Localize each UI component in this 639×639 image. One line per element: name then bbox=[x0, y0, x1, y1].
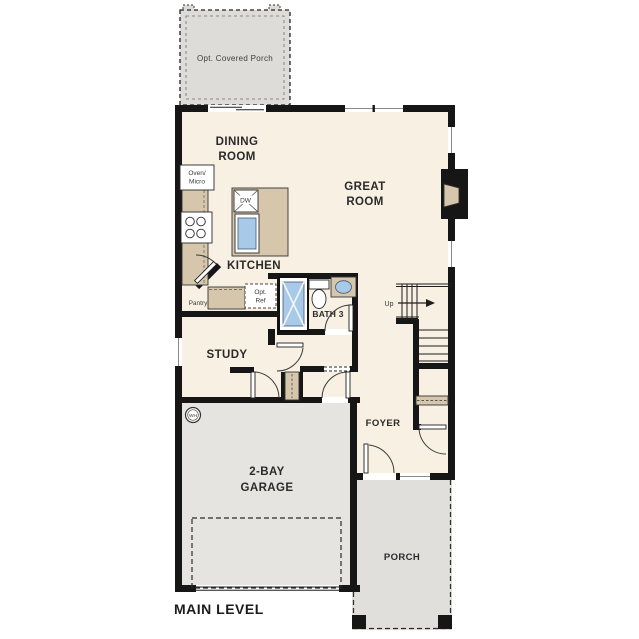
opt-ref-label-2: Ref bbox=[255, 298, 265, 305]
fireplace-hearth bbox=[444, 184, 459, 207]
study-label: STUDY bbox=[207, 349, 248, 361]
porch-label: PORCH bbox=[384, 552, 420, 563]
fireplace bbox=[441, 169, 468, 219]
toilet-bowl bbox=[312, 290, 326, 309]
wall-stair-left bbox=[413, 320, 419, 430]
kitchen-counter-lower bbox=[208, 287, 245, 309]
great-room-label-2: ROOM bbox=[346, 196, 383, 208]
wh-label: WH bbox=[189, 413, 198, 419]
door-leaf bbox=[364, 444, 368, 473]
plan-title: MAIN LEVEL bbox=[174, 601, 264, 617]
dining-room-label-2: ROOM bbox=[218, 151, 255, 163]
floor-plan-drawing: Opt. Covered Porch bbox=[0, 0, 639, 639]
wall-right bbox=[448, 105, 455, 480]
burner bbox=[197, 229, 206, 238]
opt-ref-label-1: Opt. bbox=[254, 289, 266, 296]
opt-covered-porch: Opt. Covered Porch bbox=[180, 5, 290, 105]
door-leaf bbox=[349, 305, 353, 331]
wall-study-hall bbox=[230, 367, 254, 373]
dining-room-label-1: DINING bbox=[216, 136, 259, 148]
dw-label: DW bbox=[240, 198, 252, 205]
garage-floor bbox=[180, 400, 354, 588]
water-heater: WH bbox=[186, 408, 201, 423]
porch-post bbox=[352, 615, 366, 629]
oven-micro-cabinet bbox=[180, 165, 214, 190]
burner bbox=[197, 217, 206, 226]
bath3-label: BATH 3 bbox=[312, 309, 343, 319]
front-door-opening bbox=[363, 473, 396, 480]
door-leaf bbox=[251, 372, 255, 398]
cooktop bbox=[181, 212, 212, 243]
up-label: Up bbox=[385, 301, 394, 308]
garage-label-1: 2-BAY bbox=[249, 466, 284, 478]
wall-kitchen-study bbox=[182, 311, 288, 317]
wall-garage-right bbox=[350, 403, 357, 592]
garage-label-2: GARAGE bbox=[241, 482, 294, 494]
toilet-tank bbox=[309, 280, 329, 289]
bath-sink bbox=[336, 281, 352, 294]
opt-porch-label: Opt. Covered Porch bbox=[197, 54, 273, 63]
window-mullion bbox=[373, 105, 375, 112]
kitchen-label: KITCHEN bbox=[227, 260, 281, 272]
oven-label-2: Micro bbox=[189, 179, 205, 186]
garage-entry-opening bbox=[322, 397, 348, 403]
foyer-label: FOYER bbox=[366, 418, 401, 429]
oven-label-1: Oven/ bbox=[188, 170, 206, 177]
bath-door-opening bbox=[325, 329, 352, 335]
hall-closet bbox=[285, 372, 299, 400]
wall-hall-stub bbox=[268, 329, 275, 345]
burner bbox=[186, 217, 195, 226]
porch-post bbox=[438, 615, 452, 629]
wall-closet-right bbox=[299, 372, 303, 400]
floor-plan-page: Opt. Covered Porch bbox=[0, 0, 639, 639]
great-room-label-1: GREAT bbox=[344, 181, 385, 193]
island-sink-basin bbox=[238, 218, 256, 249]
wall-closet-left bbox=[281, 372, 285, 400]
burner bbox=[186, 229, 195, 238]
door-leaf bbox=[346, 372, 350, 398]
sliding-door-opening bbox=[208, 105, 266, 112]
wall-stair-bottom bbox=[413, 363, 455, 369]
door-leaf bbox=[277, 343, 303, 347]
pantry-label: Pantry bbox=[189, 300, 209, 307]
door-leaf bbox=[419, 425, 446, 429]
